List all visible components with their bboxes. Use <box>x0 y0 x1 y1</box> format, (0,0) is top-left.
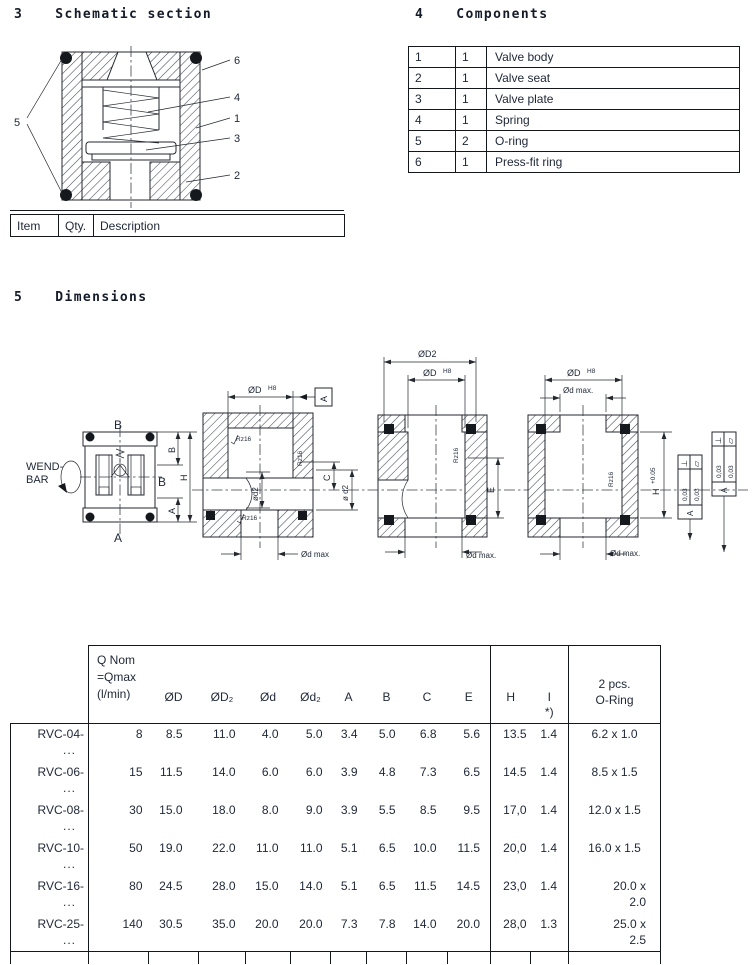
stub-cell <box>448 952 491 964</box>
component-no: 1 <box>409 47 456 68</box>
stub-cell <box>291 952 331 964</box>
section-3-heading: 3Schematic section <box>14 7 212 22</box>
dim-label-od-h8: ØD <box>248 385 262 395</box>
surface-finish-rz16: Rz16 <box>236 436 252 443</box>
b-cell: 5.5 <box>367 800 407 838</box>
model-dots: ... <box>11 742 88 758</box>
i-cell: 1.4 <box>531 838 569 876</box>
header-oring-line2: O-Ring <box>569 692 660 708</box>
callout-6: 6 <box>234 55 240 67</box>
component-row: 2 1 Valve seat <box>409 68 740 89</box>
section-3-title: Schematic section <box>55 7 212 22</box>
od-cell: 19.0 <box>149 838 199 876</box>
c-cell: 7.3 <box>407 762 448 800</box>
dd2-cell: 5.0 <box>291 724 331 762</box>
od2-cell: 14.0 <box>199 762 246 800</box>
b-cell: 4.8 <box>367 762 407 800</box>
h-cell: 17,0 <box>491 800 531 838</box>
od-cell: 30.5 <box>149 914 199 952</box>
e-cell: 9.5 <box>448 800 491 838</box>
dim-label-h-tol-sup: +0.05 <box>650 467 657 484</box>
table-row-rvc-16: RVC-16- ... 80 24.5 28.0 15.0 14.0 5.1 6… <box>11 876 661 914</box>
component-row: 3 1 Valve plate <box>409 89 740 110</box>
stub-cell <box>569 952 661 964</box>
tolerance-frame-1: ⊥ ▱ 0,03 0,03 A <box>678 455 702 540</box>
d-cell: 8.0 <box>246 800 291 838</box>
component-desc: Valve body <box>487 47 740 68</box>
table-row-rvc-10: RVC-10- ... 50 19.0 22.0 11.0 11.0 5.1 6… <box>11 838 661 876</box>
dd2-cell: 11.0 <box>291 838 331 876</box>
component-no: 6 <box>409 152 456 173</box>
b-cell: 6.5 <box>367 838 407 876</box>
port-label-top: B <box>114 418 122 432</box>
oring-size-2: 2.0 <box>569 894 660 910</box>
h-cell: 14.5 <box>491 762 531 800</box>
component-desc: Valve seat <box>487 68 740 89</box>
model-cell: RVC-04- ... <box>11 724 89 762</box>
tolerance-frame-2: ⊥ ▱ 0,03 0,03 A <box>712 432 736 552</box>
e-cell: 14.5 <box>448 876 491 914</box>
od2-cell: 11.0 <box>199 724 246 762</box>
dim-label-od-h8: ØD <box>567 368 581 378</box>
component-row: 6 1 Press-fit ring <box>409 152 740 173</box>
model-name: RVC-16- <box>11 876 88 894</box>
dd2-cell: 9.0 <box>291 800 331 838</box>
header-h: H <box>491 646 531 724</box>
oring-size-2: 2.5 <box>569 932 660 948</box>
dim-label-h-tol: H <box>651 489 661 496</box>
header-q: Q Nom =Qmax (l/min) <box>89 646 149 724</box>
datasheet-page: 3Schematic section 4Components 5Dimensio… <box>0 0 753 965</box>
c-cell: 14.0 <box>407 914 448 952</box>
e-cell: 6.5 <box>448 762 491 800</box>
od-cell: 15.0 <box>149 800 199 838</box>
header-oring: 2 pcs. O-Ring <box>569 646 661 724</box>
h-cell: 23,0 <box>491 876 531 914</box>
b-cell: 5.0 <box>367 724 407 762</box>
header-q-line3: (l/min) <box>97 686 149 703</box>
section-5-heading: 5Dimensions <box>14 290 148 305</box>
a-cell: 7.3 <box>331 914 367 952</box>
dim-label-dmax: Ød max. <box>610 549 640 558</box>
component-qty: 2 <box>456 131 487 152</box>
i-cell: 1.3 <box>531 914 569 952</box>
surface-finish-rz16: Rz16 <box>608 471 615 487</box>
tolerance-value: 0,03 <box>694 488 701 501</box>
oring-size: 8.5 x 1.5 <box>569 762 660 780</box>
stub-cell <box>149 952 199 964</box>
wendbar-label-1: WEND- <box>26 461 64 473</box>
datum-a-flag: A <box>319 396 329 402</box>
model-cell: RVC-08- ... <box>11 800 89 838</box>
header-i: I *) <box>531 646 569 724</box>
header-e: E <box>448 646 491 724</box>
model-name: RVC-10- <box>11 838 88 856</box>
callout-3: 3 <box>234 133 240 145</box>
oring-cell: 25.0 x 2.5 <box>569 914 661 952</box>
d-cell: 11.0 <box>246 838 291 876</box>
header-dd2: Ød₂ <box>291 646 331 724</box>
model-name: RVC-08- <box>11 800 88 818</box>
component-qty: 1 <box>456 152 487 173</box>
dim-label-dmax-top: Ød max. <box>563 386 593 395</box>
c-cell: 11.5 <box>407 876 448 914</box>
datum-reference-a: A <box>686 510 695 516</box>
od-cell: 8.5 <box>149 724 199 762</box>
q-cell: 140 <box>89 914 149 952</box>
item-header-row: Item Qty. Description <box>11 215 345 237</box>
component-qty: 1 <box>456 68 487 89</box>
c-cell: 8.5 <box>407 800 448 838</box>
e-cell: 5.6 <box>448 724 491 762</box>
model-cell: RVC-25- ... <box>11 914 89 952</box>
datum-reference-a: A <box>720 487 729 493</box>
oring-cell: 12.0 x 1.5 <box>569 800 661 838</box>
stub-cell <box>246 952 291 964</box>
i-cell: 1.4 <box>531 800 569 838</box>
components-table: 1 1 Valve body 2 1 Valve seat 3 1 Valve … <box>408 46 740 173</box>
dim-label-bore-d2: ød2 <box>251 487 260 501</box>
model-name: RVC-25- <box>11 914 88 932</box>
q-cell: 15 <box>89 762 149 800</box>
callout-4: 4 <box>234 92 240 104</box>
section-view-2: ØD2 ØD H8 Rz16 E Ød max. <box>378 349 504 560</box>
component-no: 2 <box>409 68 456 89</box>
model-cell: RVC-06- ... <box>11 762 89 800</box>
c-cell: 10.0 <box>407 838 448 876</box>
header-q-line2: =Qmax <box>97 669 149 686</box>
dim-label-h: H <box>179 475 189 482</box>
c-cell: 6.8 <box>407 724 448 762</box>
valve-body-section <box>62 46 200 208</box>
callout-5: 5 <box>14 117 20 129</box>
perpendicularity-symbol: ⊥ <box>714 437 723 444</box>
dim-label-dmax: Ød max <box>301 550 329 559</box>
header-a: A <box>331 646 367 724</box>
oring-cell: 6.2 x 1.0 <box>569 724 661 762</box>
wendbar-label-2: BAR <box>26 474 49 486</box>
component-desc: Press-fit ring <box>487 152 740 173</box>
callout-1: 1 <box>234 113 240 125</box>
item-header-qty: Qty. <box>59 215 94 237</box>
h-cell: 20,0 <box>491 838 531 876</box>
tolerance-value: 0,03 <box>716 465 723 478</box>
oring-cell: 20.0 x 2.0 <box>569 876 661 914</box>
component-desc: Spring <box>487 110 740 131</box>
oring-size: 16.0 x 1.5 <box>569 838 660 856</box>
table-row-rvc-04: RVC-04- ... 8 8.5 11.0 4.0 5.0 3.4 5.0 6… <box>11 724 661 762</box>
dim-label-e: E <box>486 487 496 493</box>
oring-size: 12.0 x 1.5 <box>569 800 660 818</box>
component-qty: 1 <box>456 47 487 68</box>
oring-size: 25.0 x <box>569 914 660 932</box>
surface-finish-rz16: Rz16 <box>242 515 258 522</box>
dim-label-od2: ØD2 <box>418 349 437 359</box>
component-desc: Valve plate <box>487 89 740 110</box>
model-cell: RVC-10- ... <box>11 838 89 876</box>
port-label-side: B <box>158 475 166 489</box>
component-row: 1 1 Valve body <box>409 47 740 68</box>
item-header-table: Item Qty. Description <box>10 214 345 237</box>
dim-label-od-h8-sup: H8 <box>443 368 452 375</box>
b-cell: 7.8 <box>367 914 407 952</box>
stub-cell <box>331 952 367 964</box>
h-cell: 28,0 <box>491 914 531 952</box>
dd2-cell: 14.0 <box>291 876 331 914</box>
header-i-label: I <box>531 690 569 705</box>
d-cell: 15.0 <box>246 876 291 914</box>
item-header-description: Description <box>94 215 345 237</box>
table-row-rvc-08: RVC-08- ... 30 15.0 18.0 8.0 9.0 3.9 5.5… <box>11 800 661 838</box>
header-c: C <box>407 646 448 724</box>
header-model-spacer <box>11 646 89 724</box>
header-i-footnote: *) <box>531 705 569 720</box>
component-row: 4 1 Spring <box>409 110 740 131</box>
stub-cell <box>367 952 407 964</box>
perpendicularity-symbol: ⊥ <box>680 460 689 467</box>
d-cell: 4.0 <box>246 724 291 762</box>
d-cell: 6.0 <box>246 762 291 800</box>
component-row: 5 2 O-ring <box>409 131 740 152</box>
section-view-1: ØD H8 A Rz16 Rz16 Rz16 ød2 C ø d2 Ød max <box>203 385 358 560</box>
stub-cell <box>199 952 246 964</box>
i-cell: 1.4 <box>531 762 569 800</box>
component-no: 3 <box>409 89 456 110</box>
header-oring-line1: 2 pcs. <box>569 676 660 692</box>
callout-2: 2 <box>234 170 240 182</box>
dimensions-table: Q Nom =Qmax (l/min) ØD ØD₂ Ød Ød₂ A B C … <box>10 645 661 964</box>
surface-finish-rz16: Rz16 <box>297 450 304 466</box>
front-view: B A B WEND- BAR B H A <box>26 418 197 545</box>
header-b: B <box>367 646 407 724</box>
a-cell: 5.1 <box>331 876 367 914</box>
model-dots: ... <box>11 894 88 910</box>
i-cell: 1.4 <box>531 876 569 914</box>
table-row-rvc-06: RVC-06- ... 15 11.5 14.0 6.0 6.0 3.9 4.8… <box>11 762 661 800</box>
section-4-number: 4 <box>415 7 424 22</box>
e-cell: 20.0 <box>448 914 491 952</box>
od2-cell: 28.0 <box>199 876 246 914</box>
a-cell: 3.9 <box>331 800 367 838</box>
item-table-top-rule <box>10 210 344 211</box>
header-q-line1: Q Nom <box>97 652 149 669</box>
h-cell: 13.5 <box>491 724 531 762</box>
model-cell: RVC-16- ... <box>11 876 89 914</box>
model-name: RVC-04- <box>11 724 88 742</box>
dim-label-d2: ø d2 <box>341 484 350 501</box>
section-5-number: 5 <box>14 290 23 305</box>
oring-size: 20.0 x <box>569 876 660 894</box>
dimensions-header-row: Q Nom =Qmax (l/min) ØD ØD₂ Ød Ød₂ A B C … <box>11 646 661 724</box>
surface-finish-rz16: Rz16 <box>453 447 460 463</box>
e-cell: 11.5 <box>448 838 491 876</box>
dim-label-c: C <box>322 474 332 481</box>
component-desc: O-ring <box>487 131 740 152</box>
d-cell: 20.0 <box>246 914 291 952</box>
q-cell: 8 <box>89 724 149 762</box>
section-3-number: 3 <box>14 7 23 22</box>
header-od: ØD <box>149 646 199 724</box>
dim-label-a: A <box>167 508 177 514</box>
dim-label-od-h8-sup: H8 <box>268 385 277 392</box>
dim-label-dmax: Ød max. <box>466 551 496 560</box>
oring-cell: 16.0 x 1.5 <box>569 838 661 876</box>
section-4-title: Components <box>456 7 548 22</box>
flatness-symbol: ▱ <box>726 437 735 444</box>
od2-cell: 18.0 <box>199 800 246 838</box>
section-4-heading: 4Components <box>415 7 549 22</box>
cut-off-continuation-row <box>11 952 661 964</box>
od-cell: 11.5 <box>149 762 199 800</box>
component-no: 5 <box>409 131 456 152</box>
component-qty: 1 <box>456 110 487 131</box>
dim-label-od-h8-sup: H8 <box>587 368 596 375</box>
dimensions-drawing: B A B WEND- BAR B H A <box>0 325 753 615</box>
port-label-bottom: A <box>114 531 122 545</box>
dd2-cell: 20.0 <box>291 914 331 952</box>
od-cell: 24.5 <box>149 876 199 914</box>
stub-cell <box>11 952 89 964</box>
dim-label-b: B <box>167 447 177 453</box>
dd2-cell: 6.0 <box>291 762 331 800</box>
q-cell: 30 <box>89 800 149 838</box>
section-5-title: Dimensions <box>55 290 147 305</box>
a-cell: 3.9 <box>331 762 367 800</box>
table-row-rvc-25: RVC-25- ... 140 30.5 35.0 20.0 20.0 7.3 … <box>11 914 661 952</box>
model-dots: ... <box>11 932 88 948</box>
i-cell: 1.4 <box>531 724 569 762</box>
od2-cell: 22.0 <box>199 838 246 876</box>
a-cell: 3.4 <box>331 724 367 762</box>
stub-cell <box>407 952 448 964</box>
component-no: 4 <box>409 110 456 131</box>
item-header-item: Item <box>11 215 59 237</box>
model-dots: ... <box>11 818 88 834</box>
header-od2: ØD₂ <box>199 646 246 724</box>
schematic-section-drawing: 6 4 1 3 2 5 <box>10 42 340 212</box>
stub-cell <box>531 952 569 964</box>
tolerance-value: 0,03 <box>728 465 735 478</box>
stub-cell <box>491 952 531 964</box>
header-d: Ød <box>246 646 291 724</box>
model-dots: ... <box>11 780 88 796</box>
q-cell: 50 <box>89 838 149 876</box>
tolerance-value: 0,03 <box>682 488 689 501</box>
stub-cell <box>89 952 149 964</box>
od2-cell: 35.0 <box>199 914 246 952</box>
a-cell: 5.1 <box>331 838 367 876</box>
component-qty: 1 <box>456 89 487 110</box>
flatness-symbol: ▱ <box>692 460 701 467</box>
model-name: RVC-06- <box>11 762 88 780</box>
model-dots: ... <box>11 856 88 872</box>
oring-size: 6.2 x 1.0 <box>569 724 660 742</box>
dim-label-od-h8: ØD <box>423 368 437 378</box>
b-cell: 6.5 <box>367 876 407 914</box>
q-cell: 80 <box>89 876 149 914</box>
oring-cell: 8.5 x 1.5 <box>569 762 661 800</box>
section-view-3: ØD H8 Ød max. Rz16 H +0.05 Ød max. ⊥ ▱ 0… <box>528 368 736 560</box>
